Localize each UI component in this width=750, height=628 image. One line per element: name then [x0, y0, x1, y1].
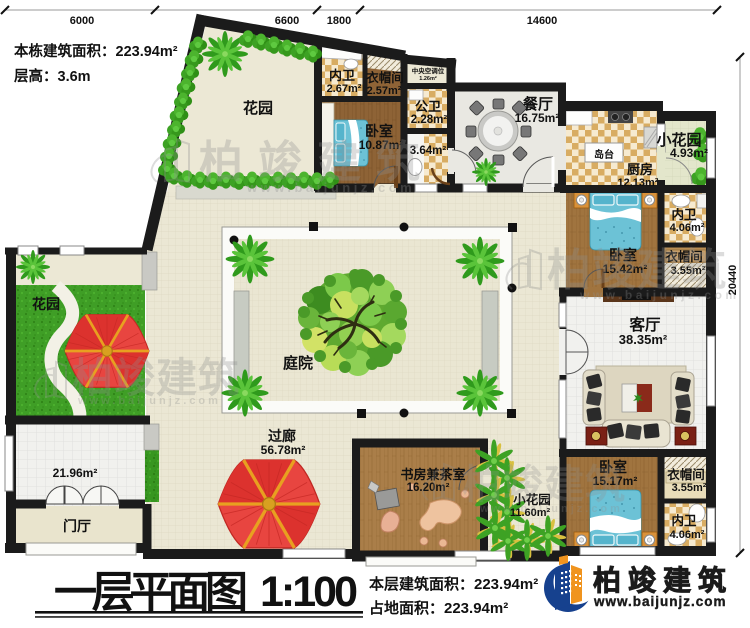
svg-text:4.93m²: 4.93m²: [670, 146, 708, 160]
svg-text:2.28m²: 2.28m²: [411, 114, 448, 126]
svg-text:www.baijunjz.com: www.baijunjz.com: [479, 503, 623, 515]
svg-text:14600: 14600: [527, 15, 558, 27]
svg-text:中央空调位: 中央空调位: [412, 66, 445, 75]
svg-text:38.35m²: 38.35m²: [619, 332, 668, 347]
svg-text:内卫: 内卫: [671, 207, 697, 222]
svg-text:1:100: 1:100: [260, 568, 358, 616]
svg-text:门厅: 门厅: [63, 518, 91, 534]
svg-text:本层建筑面积：223.94m²: 本层建筑面积：223.94m²: [369, 575, 538, 593]
svg-text:4.06m²: 4.06m²: [670, 529, 705, 541]
svg-text:占地面积：223.94m²: 占地面积：223.94m²: [369, 599, 508, 617]
svg-text:岛台: 岛台: [594, 148, 614, 161]
svg-text:花园: 花园: [32, 296, 60, 312]
svg-text:一层平面图: 一层平面图: [54, 569, 248, 617]
svg-text:20440: 20440: [727, 265, 739, 296]
svg-text:6000: 6000: [70, 15, 94, 27]
svg-text:www.baijunjz.com: www.baijunjz.com: [593, 594, 727, 609]
svg-text:56.78m²: 56.78m²: [261, 443, 306, 457]
svg-text:本栋建筑面积：223.94m²: 本栋建筑面积：223.94m²: [14, 42, 178, 60]
svg-text:www.baijunjz.com: www.baijunjz.com: [246, 180, 415, 195]
svg-text:过廊: 过廊: [268, 428, 296, 444]
svg-text:柏竣建筑: 柏竣建筑: [462, 463, 626, 507]
svg-text:柏竣建筑: 柏竣建筑: [593, 564, 733, 596]
svg-text:6600: 6600: [275, 15, 299, 27]
svg-text:3.55m²: 3.55m²: [672, 482, 707, 494]
svg-text:1.26m²: 1.26m²: [419, 75, 437, 82]
svg-text:www.baijunjz.com: www.baijunjz.com: [579, 288, 740, 302]
svg-text:卧室: 卧室: [365, 123, 393, 139]
svg-text:16.75m²: 16.75m²: [515, 111, 560, 125]
svg-text:4.06m²: 4.06m²: [670, 222, 705, 234]
svg-text:衣帽间: 衣帽间: [667, 467, 705, 482]
svg-text:公卫: 公卫: [415, 99, 441, 114]
svg-text:21.96m²: 21.96m²: [53, 466, 98, 480]
svg-text:内卫: 内卫: [329, 68, 355, 83]
svg-text:12.13m²: 12.13m²: [618, 177, 659, 189]
svg-text:内卫: 内卫: [671, 513, 697, 528]
svg-text:www.baijunjz.com: www.baijunjz.com: [77, 395, 221, 407]
svg-text:2.67m²: 2.67m²: [327, 83, 362, 95]
svg-text:庭院: 庭院: [283, 354, 313, 372]
svg-text:厨房: 厨房: [627, 162, 653, 177]
svg-text:花园: 花园: [243, 99, 273, 117]
svg-text:1800: 1800: [327, 15, 351, 27]
svg-text:2.57m²: 2.57m²: [367, 85, 402, 97]
svg-text:层高：3.6m: 层高：3.6m: [14, 67, 91, 85]
svg-text:衣帽间: 衣帽间: [366, 70, 404, 85]
